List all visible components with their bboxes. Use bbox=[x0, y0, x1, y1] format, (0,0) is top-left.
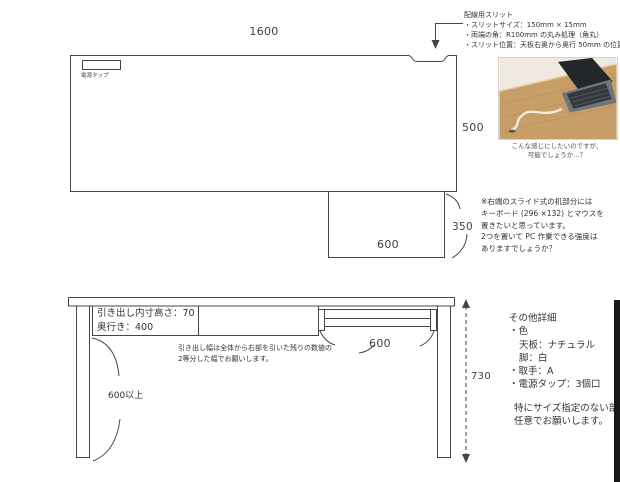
height-dim-arrow-up bbox=[462, 299, 470, 308]
photo-caption: こんな感じにしたいのですが、 可能でしょうか…？ bbox=[494, 142, 620, 160]
right-leg bbox=[438, 306, 451, 458]
slide-note-line: ※右端のスライド式の机部分には bbox=[481, 196, 604, 208]
slide-swoosh-bottom bbox=[452, 234, 467, 258]
slit-leader-line bbox=[436, 24, 464, 42]
slit-note-line: ・スリットサイズ：150mm × 15mm bbox=[464, 20, 620, 30]
drawer-note-line: 2等分した幅でお願いします。 bbox=[178, 354, 332, 365]
details-footer-line: 特にサイズ指定のない部分 bbox=[514, 402, 620, 415]
desk-spec-drawing: 1600 500 350 600 電源タップ 配線用スリット ・スリットサイズ：… bbox=[0, 0, 620, 482]
slit-note-title: 配線用スリット bbox=[464, 10, 620, 20]
drawer-spec-label: 引き出し内寸高さ：70 奥行き：400 bbox=[97, 307, 195, 335]
photo-cable-hole bbox=[509, 130, 516, 133]
height-dim-arrow-down bbox=[462, 454, 470, 463]
other-details-title: その他詳細 bbox=[509, 312, 601, 325]
drawer-note-line: 引き出し幅は全体から右部を引いた残りの数値の bbox=[178, 343, 332, 354]
left-leg bbox=[77, 306, 90, 458]
details-footer-line: 任意でお願いします。 bbox=[514, 415, 620, 428]
other-details: その他詳細 ・色 天板：ナチュラル 脚：白 ・取手：A ・電源タップ：3個口 bbox=[509, 312, 601, 392]
detail-item-power: ・電源タップ：3個口 bbox=[509, 378, 601, 391]
knee-clearance-label: 600以上 bbox=[108, 388, 143, 401]
top-view-drawing bbox=[71, 24, 468, 259]
reference-photo bbox=[498, 57, 618, 140]
slide-depth-dim: 350 bbox=[452, 221, 473, 233]
tray-swoosh-right bbox=[420, 331, 434, 346]
height-dim-label: 730 bbox=[471, 371, 491, 382]
slide-note-line: ありますでしょうか？ bbox=[481, 243, 604, 255]
photo-caption-line: 可能でしょうか…？ bbox=[494, 151, 620, 160]
top-view-width-dim: 1600 bbox=[234, 25, 294, 38]
drawer-width-note: 引き出し幅は全体から右部を引いた残りの数値の 2等分した幅でお願いします。 bbox=[178, 343, 332, 365]
tray-left-cap bbox=[319, 310, 325, 331]
slit-note-line: ・両端の角：R100mm の丸み処理（角丸） bbox=[464, 30, 620, 40]
drawer-depth-label: 奥行き：400 bbox=[97, 321, 195, 335]
desk-top-outline bbox=[71, 56, 457, 192]
slit-leader-arrowhead bbox=[432, 40, 440, 49]
slide-note-line: 2つを置いて PC 作業できる強度は bbox=[481, 231, 604, 243]
power-tap-outline bbox=[83, 61, 121, 70]
slit-note: 配線用スリット ・スリットサイズ：150mm × 15mm ・両端の角：R100… bbox=[464, 10, 620, 50]
tray-right-cap bbox=[431, 310, 437, 331]
reference-photo-illustration bbox=[499, 58, 617, 139]
photo-caption-line: こんな感じにしたいのですが、 bbox=[494, 142, 620, 151]
clearance-arc-top bbox=[92, 338, 119, 376]
slide-width-dim: 600 bbox=[368, 238, 408, 251]
top-view-depth-dim: 500 bbox=[462, 121, 484, 134]
right-edge-bar bbox=[614, 300, 620, 482]
detail-item-top: 天板：ナチュラル bbox=[519, 339, 601, 352]
power-tap-label: 電源タップ bbox=[81, 71, 109, 79]
slide-swoosh-top bbox=[446, 194, 460, 209]
detail-item-handle: ・取手：A bbox=[509, 365, 601, 378]
slit-note-line: ・スリット位置：天板右奥から奥行 50mm の位置 bbox=[464, 40, 620, 50]
drawer-inner-height-label: 引き出し内寸高さ：70 bbox=[97, 307, 195, 321]
detail-item-legs: 脚：白 bbox=[519, 352, 601, 365]
tray-width-dim: 600 bbox=[360, 337, 400, 350]
slide-note-line: 置きたいと思っています。 bbox=[481, 220, 604, 232]
details-footer: 特にサイズ指定のない部分 任意でお願いします。 bbox=[514, 402, 620, 429]
slide-note-line: キーボード (296 ×132) とマウスを bbox=[481, 208, 604, 220]
clearance-arc-bottom bbox=[93, 419, 120, 461]
detail-item-color: ・色 bbox=[509, 325, 601, 338]
slide-strength-note: ※右端のスライド式の机部分には キーボード (296 ×132) とマウスを 置… bbox=[481, 196, 604, 255]
tabletop-front bbox=[69, 298, 455, 307]
